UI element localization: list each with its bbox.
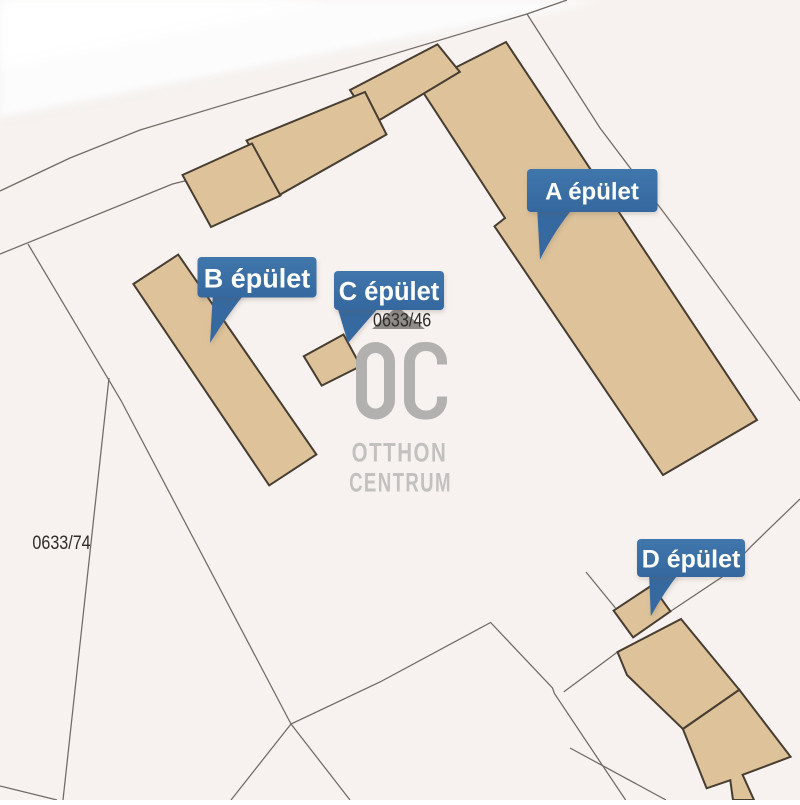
svg-text:OTTHON: OTTHON: [352, 438, 448, 468]
svg-text:0633/46: 0633/46: [373, 309, 431, 331]
svg-text:A épület: A épület: [545, 179, 639, 206]
svg-text:B épület: B épület: [204, 264, 311, 294]
svg-text:D épület: D épület: [642, 546, 741, 574]
svg-text:CENTRUM: CENTRUM: [349, 467, 452, 497]
svg-text:C épület: C épület: [339, 278, 440, 306]
svg-text:0633/74: 0633/74: [32, 532, 90, 554]
